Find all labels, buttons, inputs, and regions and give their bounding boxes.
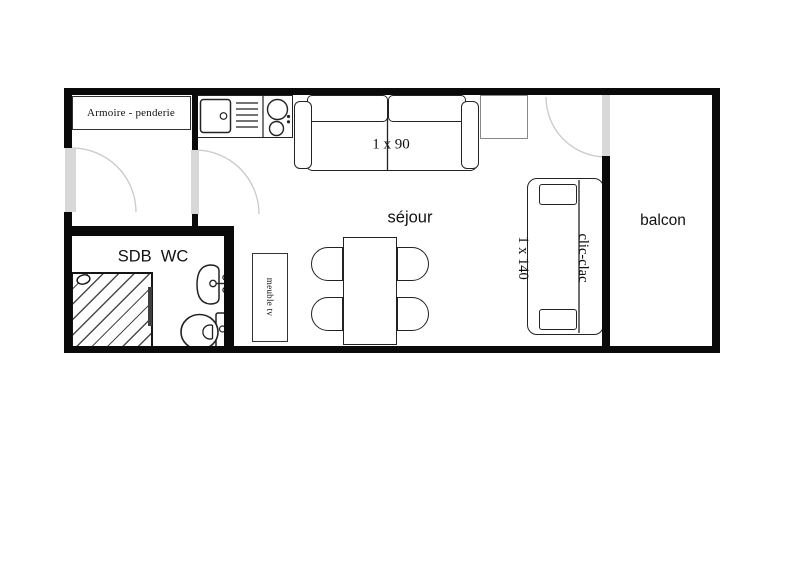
balcony-door-leaf	[602, 93, 610, 156]
wall-left-upper	[64, 88, 72, 148]
hall-door-swing-arc	[195, 150, 259, 214]
kitchen-sink-basin	[201, 100, 231, 133]
balcony-label: balcon	[640, 212, 686, 230]
hob-burner-small	[270, 122, 284, 136]
wall-bathroom-right	[224, 226, 234, 353]
apartment-floorplan: Armoire - penderie SDB WC séjour balcon …	[0, 0, 800, 566]
wall-bottom	[64, 346, 720, 353]
hob-knob-2	[287, 120, 290, 123]
bed-size-label: 1 x 90	[372, 137, 410, 154]
wall-right	[712, 88, 720, 353]
shower-drain	[76, 273, 91, 285]
kitchen-drainer-lines	[236, 103, 258, 127]
wall-top	[64, 88, 720, 95]
fixtures-layer	[0, 0, 800, 566]
hob-burner-large	[268, 100, 288, 120]
hall-door-leaf	[191, 150, 199, 214]
entry-door-swing-arc	[72, 148, 136, 212]
wardrobe-label: Armoire - penderie	[87, 107, 175, 119]
bathroom-label: SDB WC	[118, 248, 189, 267]
living-room-label: séjour	[388, 209, 433, 228]
wall-hall-kitchen-upper	[192, 95, 198, 150]
sofa-bed-label-line2: 1 x 140	[513, 233, 533, 282]
balcony-door-swing-arc	[546, 97, 606, 157]
sofa-bed-label-line1: clic-clac	[573, 233, 593, 282]
entry-door-leaf	[65, 148, 76, 212]
tv-stand-label: meuble tv	[265, 278, 275, 316]
toilet-flush	[203, 325, 213, 339]
wall-bathroom-top	[64, 226, 234, 236]
sofa-bed-label: clic-clac 1 x 140	[473, 233, 633, 282]
washbasin-faucet	[210, 280, 216, 286]
hob-knob-1	[287, 115, 290, 118]
